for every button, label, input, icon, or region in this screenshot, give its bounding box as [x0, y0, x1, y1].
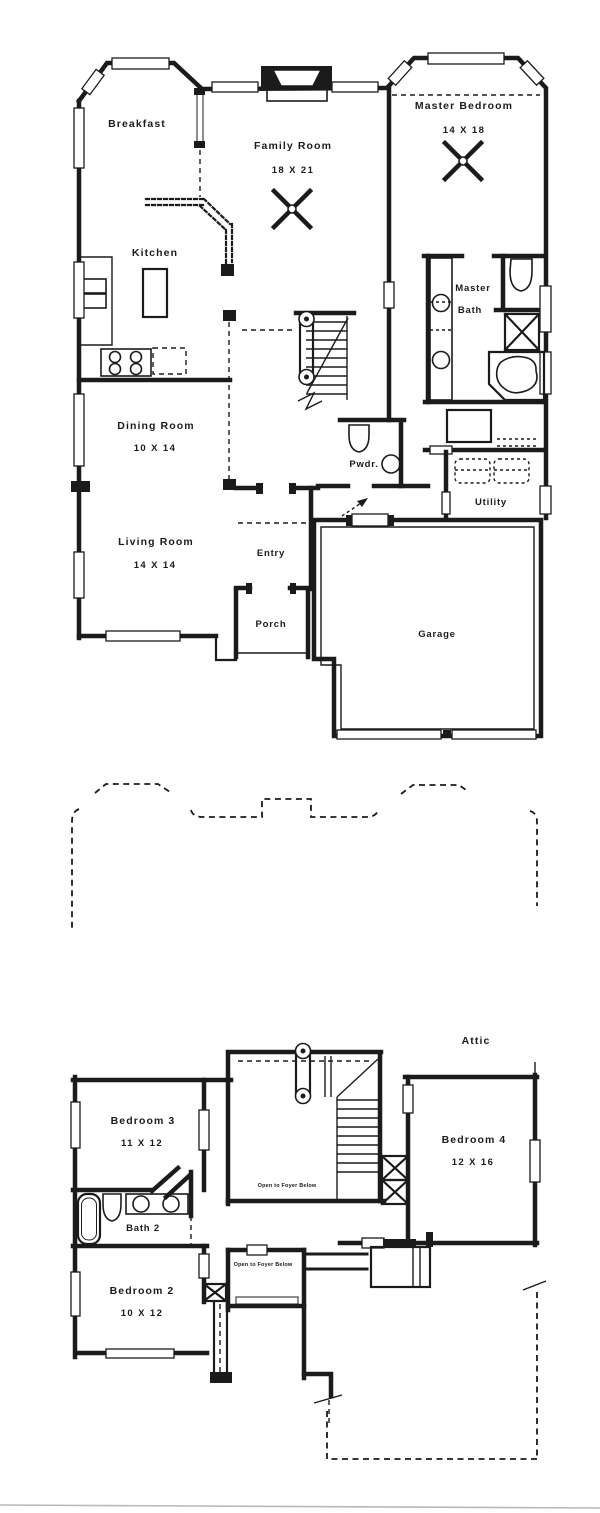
room-dims-dining-room: 10 X 14 — [134, 443, 177, 454]
staircase-first-floor — [298, 312, 348, 410]
room-label-bedroom2: Bedroom 2 — [110, 1285, 175, 1297]
room-label-dining-room: Dining Room — [117, 420, 194, 432]
roof-outline-dashed — [72, 784, 537, 931]
room-label-utility: Utility — [475, 497, 507, 508]
kitchen-sink-icon — [83, 279, 106, 293]
room-label-bath2: Bath 2 — [126, 1223, 160, 1234]
refrigerator-icon — [153, 348, 186, 374]
room-label-powder: Pwdr. — [349, 459, 378, 470]
room-dims-living-room: 14 X 14 — [134, 560, 177, 571]
first-floor-interior-walls — [71, 88, 544, 589]
sink-icon — [433, 352, 450, 369]
shower-icon — [505, 314, 539, 350]
room-dims-master-bedroom: 14 X 18 — [443, 125, 486, 136]
vanity-counter — [430, 258, 452, 400]
garage-roof-outline — [327, 1281, 546, 1459]
closet-icon — [204, 1284, 226, 1301]
room-label-breakfast: Breakfast — [108, 118, 166, 130]
sink-icon — [163, 1196, 179, 1212]
room-dims-bedroom2: 10 X 12 — [121, 1308, 164, 1319]
kitchen-island — [143, 269, 167, 317]
second-floor-walls — [73, 1052, 537, 1424]
ceiling-fan-icon — [445, 143, 481, 179]
fireplace-icon — [261, 66, 332, 101]
linen-closet — [447, 410, 491, 442]
garage-walls — [314, 514, 541, 739]
entry-arrow-icon — [342, 498, 368, 516]
label-open-to-foyer-1: Open to Foyer Below — [258, 1183, 317, 1189]
toilet-icon — [349, 425, 369, 452]
room-label-kitchen: Kitchen — [132, 247, 178, 259]
breakfast-family-opening — [194, 88, 205, 197]
garage-door-panel — [452, 730, 536, 739]
room-label-master-bedroom: Master Bedroom — [415, 100, 513, 112]
label-open-to-foyer-2: Open to Foyer Below — [234, 1262, 293, 1268]
room-dims-bedroom4: 12 X 16 — [452, 1157, 495, 1168]
room-label-entry: Entry — [257, 548, 285, 559]
label-attic: Attic — [462, 1035, 491, 1047]
kitchen-sink-icon — [83, 294, 106, 308]
room-label-master-bath-2: Bath — [458, 305, 482, 316]
toilet-icon — [103, 1194, 121, 1221]
range-icon — [101, 349, 151, 376]
first-floor: Breakfast Family Room 18 X 21 Master Bed… — [71, 53, 551, 739]
room-label-living-room: Living Room — [118, 536, 194, 548]
second-floor: Attic Bedroom 3 11 X 12 Bedroom 4 12 X 1… — [71, 1035, 546, 1459]
room-label-porch: Porch — [256, 619, 287, 630]
bathtub-icon — [78, 1194, 100, 1244]
garden-tub-icon — [489, 352, 544, 400]
sink-icon — [133, 1196, 149, 1212]
washer-dryer-icons — [455, 459, 529, 483]
room-label-garage: Garage — [418, 629, 456, 640]
linen-closet-icon — [382, 1156, 408, 1204]
room-label-bedroom4: Bedroom 4 — [442, 1134, 507, 1146]
room-label-family-room: Family Room — [254, 140, 332, 152]
room-label-bedroom3: Bedroom 3 — [111, 1115, 176, 1127]
sink-icon — [382, 455, 400, 473]
toilet-icon — [510, 259, 532, 291]
sink-icon — [433, 295, 450, 312]
ceiling-fan-icon — [274, 191, 310, 227]
scan-artifact-line — [0, 1505, 600, 1508]
room-dims-family-room: 18 X 21 — [272, 165, 315, 176]
floor-plan: Breakfast Family Room 18 X 21 Master Bed… — [0, 0, 600, 1513]
kitchen-bar-counter — [146, 199, 234, 276]
garage-door-panel — [337, 730, 441, 739]
room-dims-bedroom3: 11 X 12 — [121, 1138, 163, 1149]
room-label-master-bath-1: Master — [455, 283, 490, 294]
bath2-fixtures — [78, 1194, 188, 1244]
staircase-second-floor — [296, 1044, 379, 1202]
